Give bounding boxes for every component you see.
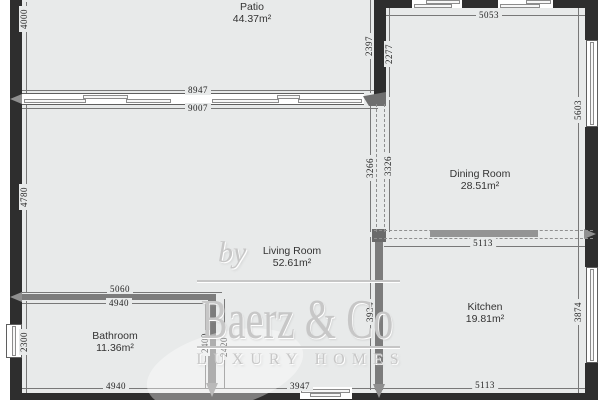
room-area: 28.51m² (450, 180, 511, 192)
dimension-label: 3947 (287, 381, 313, 391)
dimension-label: 2397 (364, 33, 374, 59)
room-label-living: Living Room 52.61m² (263, 245, 321, 270)
arrow-left-icon (10, 94, 22, 104)
window-pane (277, 95, 300, 99)
dimension-label: 3874 (573, 299, 583, 325)
dimension-label: 4780 (19, 184, 29, 210)
dimension-label: 4940 (106, 298, 132, 308)
arrow-right-icon (584, 229, 596, 239)
room-label-bathroom: Bathroom 11.36m² (92, 330, 138, 355)
window-pane (590, 269, 594, 361)
exterior-wall-right-mid (585, 127, 598, 267)
dimension-label: 3326 (383, 153, 393, 179)
window-pane (426, 0, 460, 4)
watermark-tagline: LUXURY HOMES (196, 351, 405, 369)
room-area: 19.81m² (466, 313, 505, 325)
room-name: Patio (233, 1, 272, 13)
watermark-by: by (218, 236, 246, 270)
arrow-left-icon (10, 292, 22, 302)
room-area: 11.36m² (92, 342, 138, 354)
dimension-label: 3266 (365, 155, 375, 181)
window-pane (310, 393, 341, 397)
dimension-label: 2277 (384, 41, 394, 67)
watermark-brand: Baerz & Co (201, 292, 394, 348)
dimension-label: 5113 (472, 380, 498, 390)
watermark-rule-top (197, 280, 400, 282)
dimension-label: 8947 (185, 85, 211, 95)
room-label-kitchen: Kitchen 19.81m² (466, 301, 505, 326)
window-pane (212, 99, 279, 103)
dimension-label: 4940 (103, 381, 129, 391)
dimension-label: 9007 (185, 103, 211, 113)
room-name: Kitchen (466, 301, 505, 313)
room-area: 44.37m² (233, 13, 272, 25)
window-dining-top-1 (412, 0, 462, 8)
window-kitchen-right (586, 267, 598, 363)
kitchen-counter-bar (430, 230, 538, 237)
window-pane (526, 0, 551, 4)
dimension-label: 5603 (573, 97, 583, 123)
dimension-label: 5113 (470, 238, 496, 248)
room-name: Living Room (263, 245, 321, 257)
room-label-dining: Dining Room 28.51m² (450, 168, 511, 193)
window-pane (126, 99, 171, 103)
room-name: Bathroom (92, 330, 138, 342)
dimension-label: 5060 (107, 284, 133, 294)
exterior-wall-top-dining (375, 0, 598, 8)
room-area: 52.61m² (263, 257, 321, 269)
watermark-rule-bottom (197, 346, 400, 348)
window-pane (414, 4, 452, 8)
floor-plan: 8947 9007 4000 5053 2397 2277 5603 3266 … (0, 0, 600, 400)
window-pane (12, 326, 16, 356)
dimension-label: 2300 (19, 329, 29, 355)
window-pane (590, 42, 594, 125)
window-pane (83, 95, 128, 99)
dimension-label: 5053 (476, 10, 502, 20)
room-name: Dining Room (450, 168, 511, 180)
window-dining-top-2 (498, 0, 553, 8)
window-pane (500, 4, 540, 8)
window-pane (298, 99, 362, 103)
dimension-label: 4000 (19, 6, 29, 32)
window-dining-right (586, 40, 598, 127)
arrow-down-icon (373, 384, 385, 398)
window-pane (24, 99, 86, 103)
exterior-wall-right-bottom (585, 363, 598, 400)
room-label-patio: Patio 44.37m² (233, 1, 272, 26)
